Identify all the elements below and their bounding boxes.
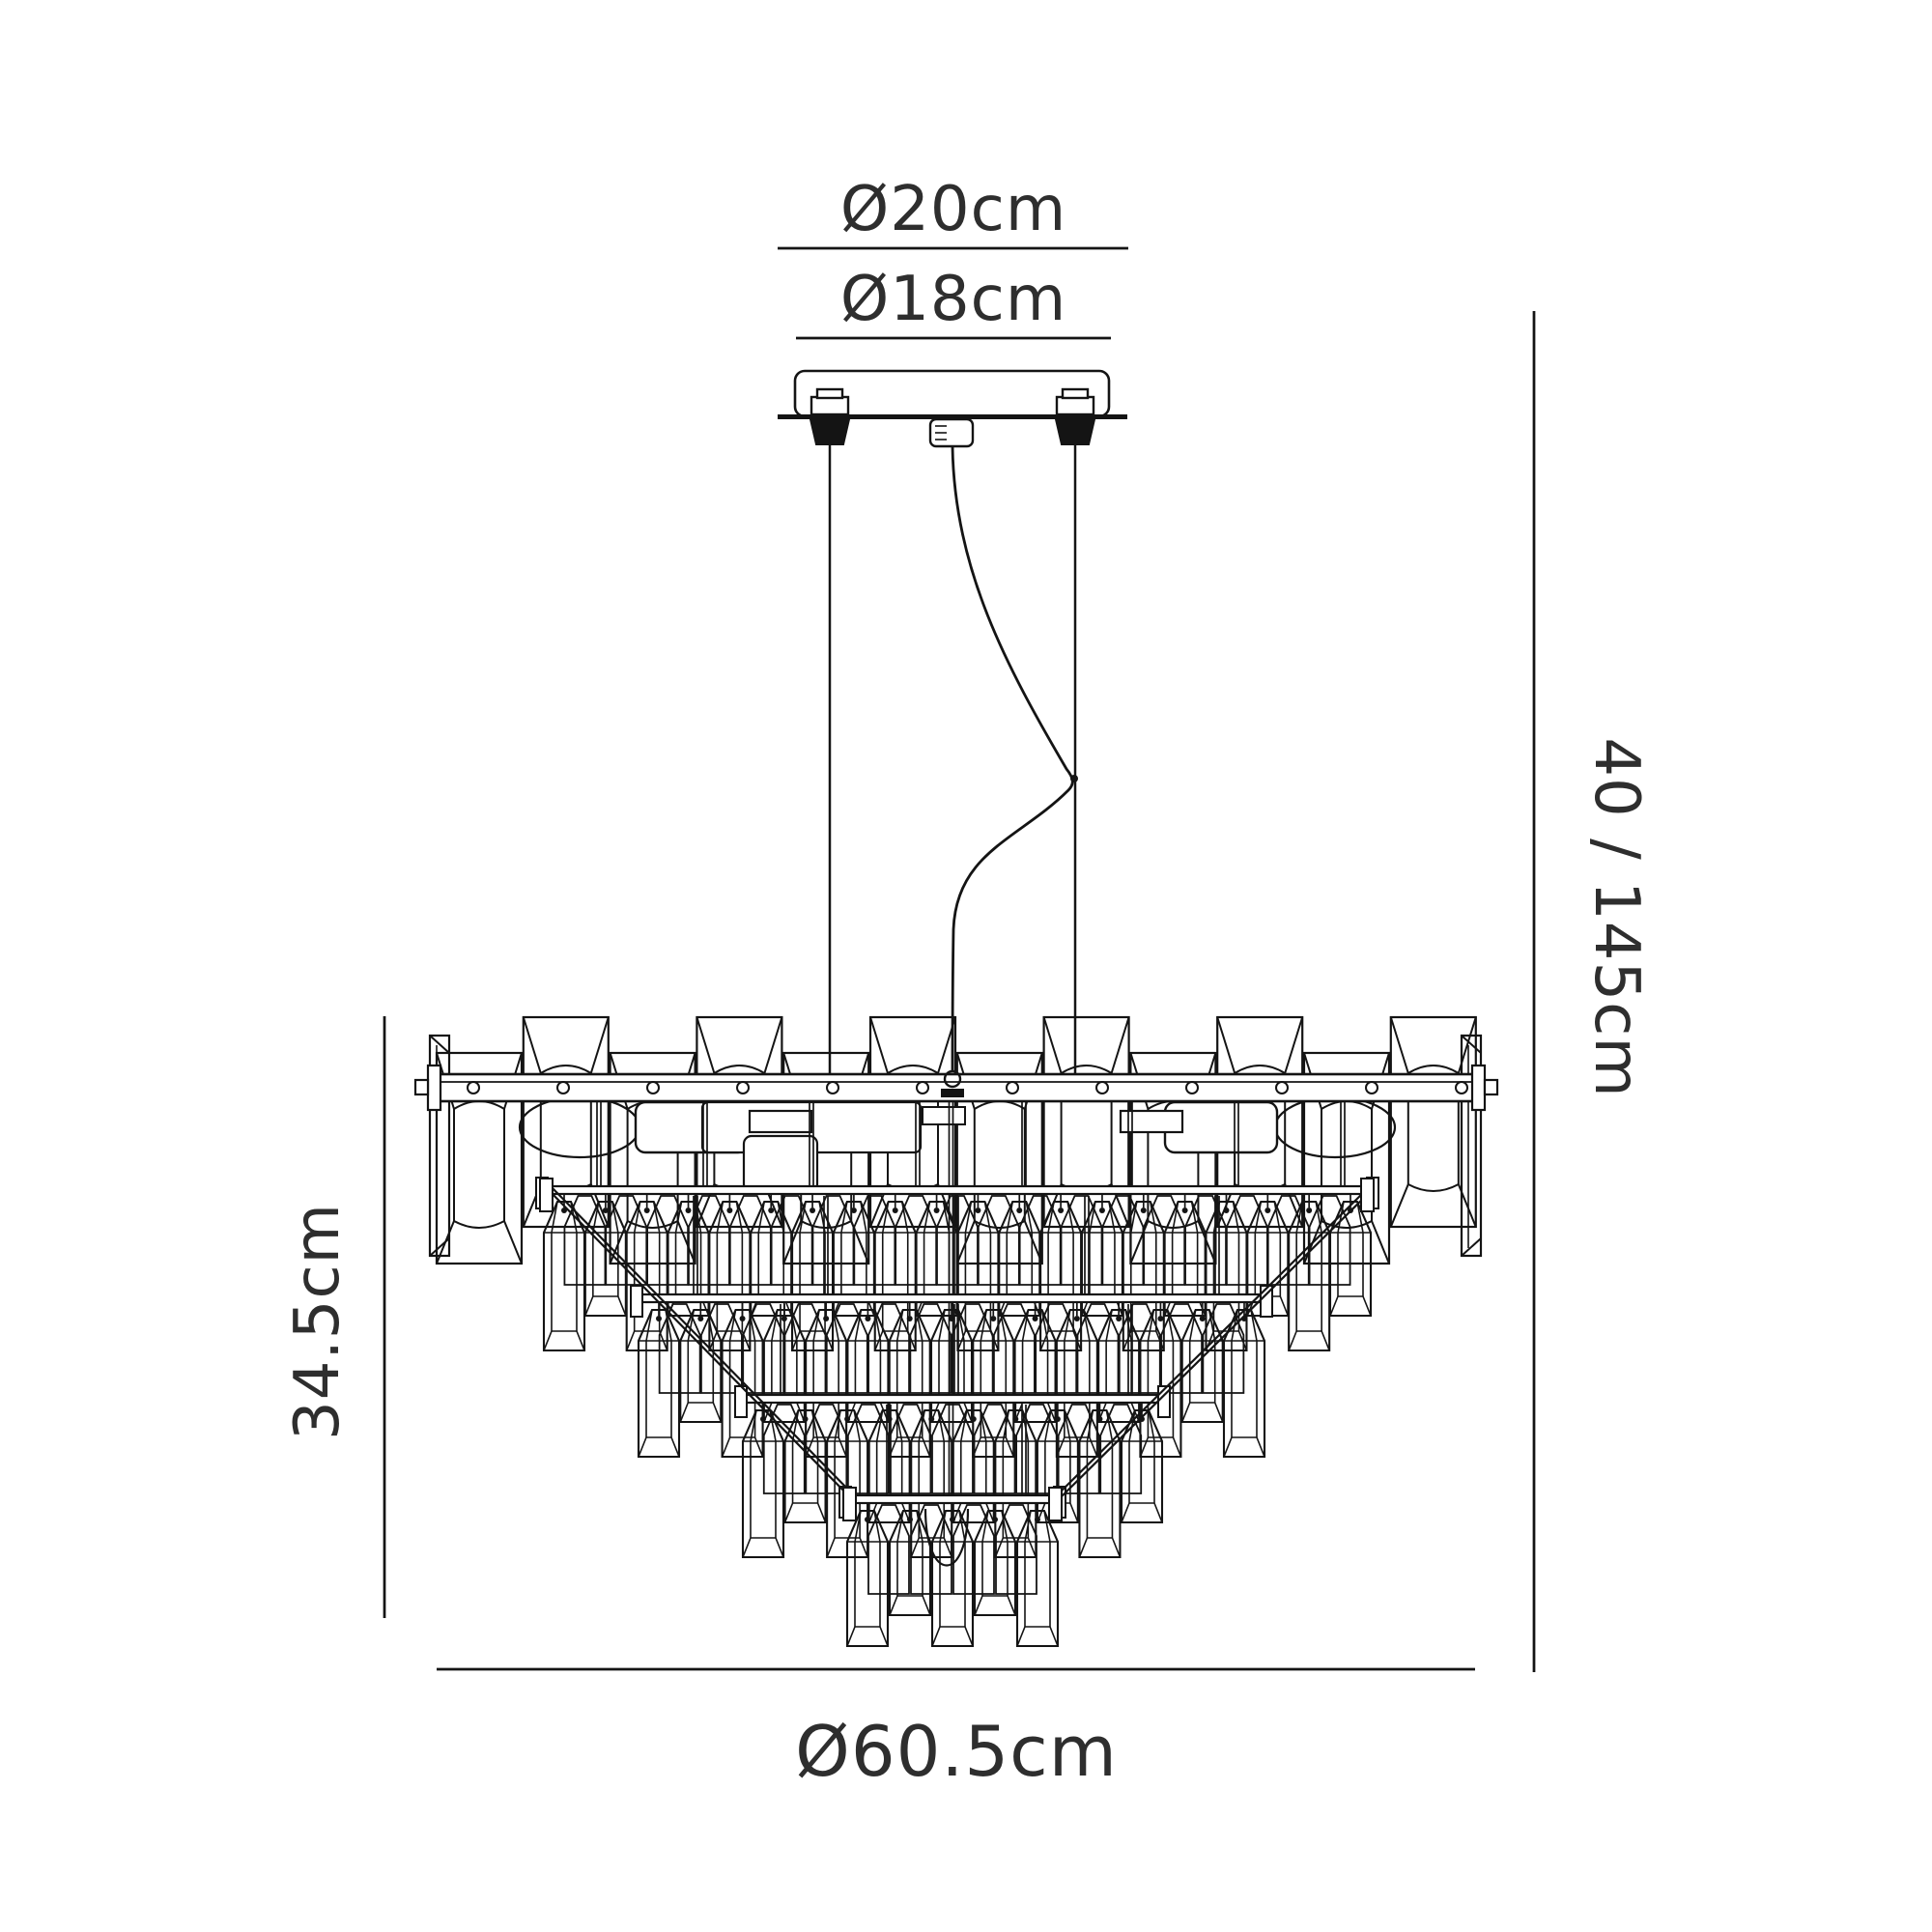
body-height-label: 34.5cm <box>282 1203 354 1440</box>
canopy-outer-diameter-label: Ø20cm <box>840 174 1066 245</box>
suspension-drop-label: 40 / 145cm <box>1580 737 1652 1097</box>
chandelier-dimension-diagram: Ø20cm Ø18cm 40 / 145cm 34.5cm Ø60.5cm <box>0 0 1932 1932</box>
chandelier-line-art <box>415 371 1497 1646</box>
technical-drawing: Ø20cm Ø18cm 40 / 145cm 34.5cm Ø60.5cm <box>0 0 1932 1932</box>
canopy-inner-diameter-label: Ø18cm <box>840 264 1066 335</box>
body-diameter-label: Ø60.5cm <box>795 1711 1118 1792</box>
